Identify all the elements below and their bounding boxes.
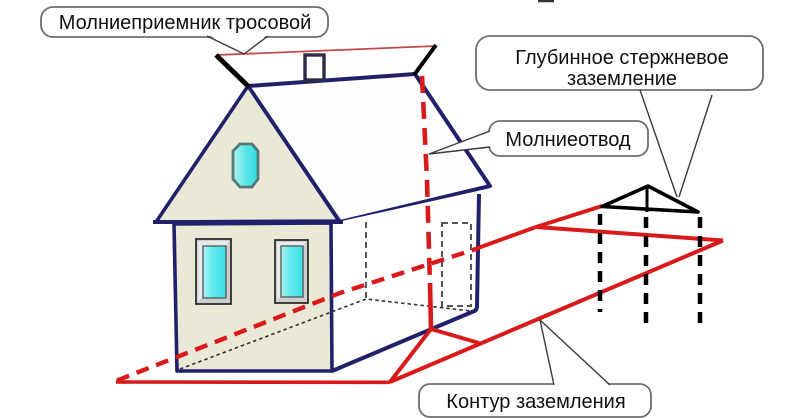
svg-text:Контур заземления: Контур заземления	[446, 391, 625, 413]
svg-text:Глубинное стержневое: Глубинное стержневое	[515, 47, 729, 69]
svg-text:Молниеотвод: Молниеотвод	[505, 129, 631, 151]
svg-text:заземление: заземление	[567, 68, 677, 90]
svg-text:Молниеприемник тросовой: Молниеприемник тросовой	[59, 12, 312, 34]
